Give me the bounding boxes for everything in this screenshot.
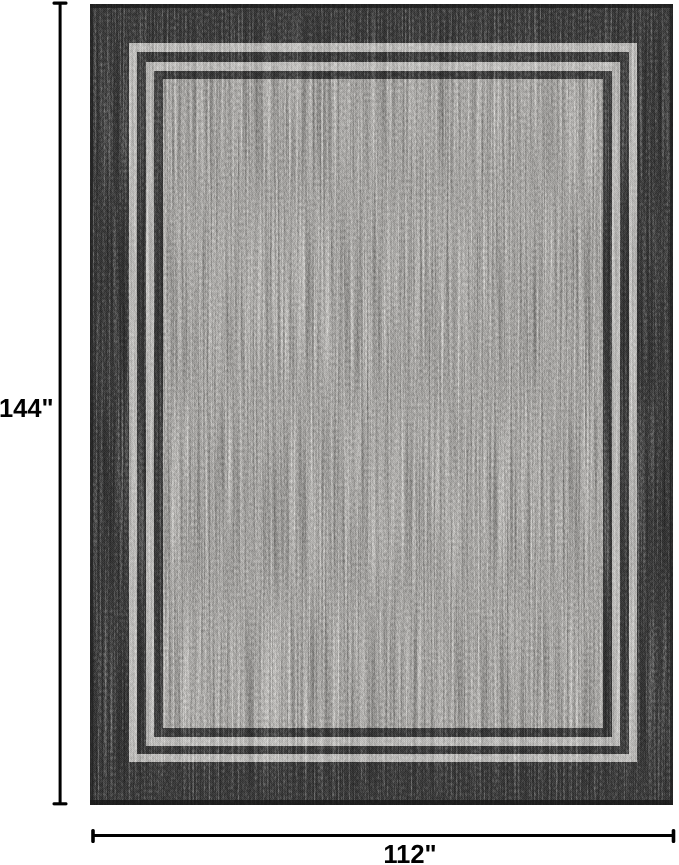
svg-text:112": 112": [383, 841, 436, 865]
svg-text:144": 144": [0, 395, 54, 423]
